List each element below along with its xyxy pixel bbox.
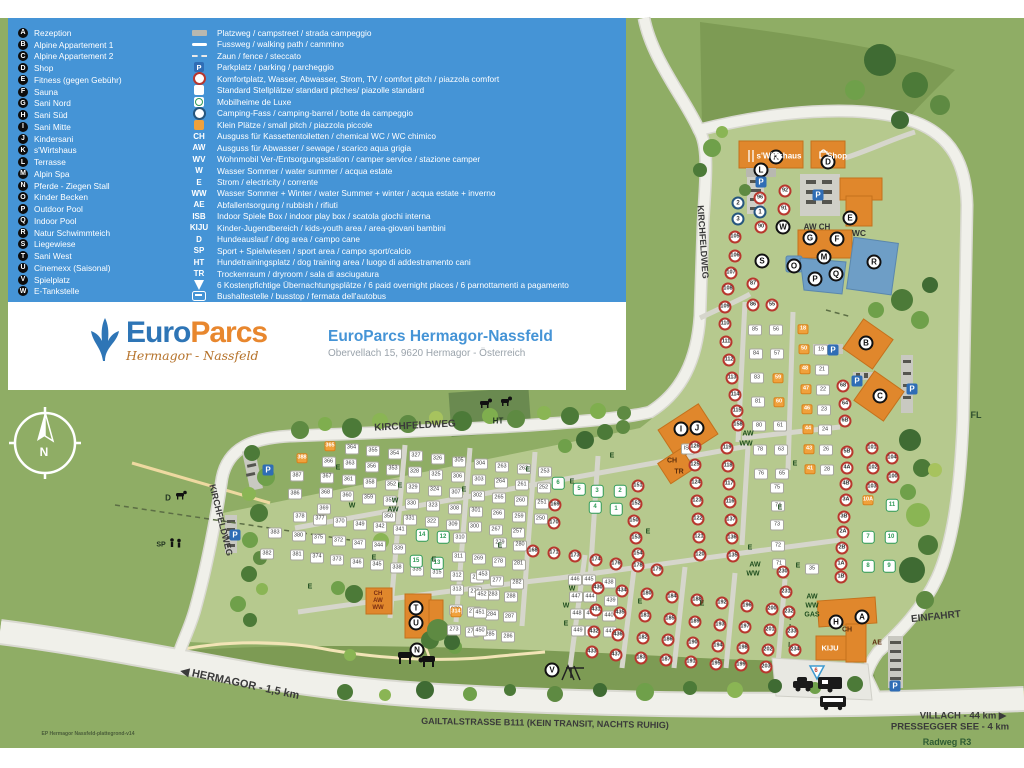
legend-letter-label: Alpin Spa [34, 169, 70, 179]
pitch-200: 200 [766, 603, 779, 616]
pitch-137: 137 [725, 514, 738, 527]
legend-symbol-label: Strom / electricity / corrente [217, 177, 318, 187]
map-label: W [349, 503, 356, 510]
pitch-430: 430 [592, 582, 605, 595]
legend-letter-label: Natur Schwimmteich [34, 228, 110, 238]
legend-letter-badge: W [18, 286, 28, 296]
pitch-368: 368 [319, 488, 333, 499]
legend-item-V: VSpielplatz [18, 274, 186, 286]
map-label: AW [806, 594, 817, 601]
legend-item-K: Ks'Wirtshaus [18, 145, 186, 157]
mobil-icon [186, 97, 212, 107]
map-label: SP [156, 542, 165, 549]
pitch-287: 287 [503, 612, 517, 623]
legend-item-R: RNatur Schwimmteich [18, 227, 186, 239]
pitch-5B: 5B [841, 446, 854, 459]
pitch-118: 118 [722, 460, 735, 473]
pitch-75: 75 [770, 483, 784, 494]
pitch-96: 96 [754, 192, 767, 205]
pitch-169: 169 [549, 499, 562, 512]
pitch-3: 3 [591, 485, 604, 498]
legend-code-SP: SP [186, 246, 212, 255]
legend-symbol-item: WVWohnmobil Ver-/Entsorgungsstation / ca… [186, 153, 569, 164]
map-label: ◀ HERMAGOR - 1,5 km [180, 664, 301, 702]
pitch-452: 452 [475, 590, 489, 601]
pitch-108: 108 [722, 283, 735, 296]
map-label: WW [372, 605, 383, 611]
pitch-4B: 4B [840, 478, 853, 491]
legend-letter-badge: P [18, 204, 28, 214]
pitch-313: 313 [450, 585, 464, 596]
pitch-168: 168 [527, 545, 540, 558]
legend-letter-label: Sauna [34, 87, 58, 97]
pitch-116: 116 [724, 496, 737, 509]
road-icon [186, 30, 212, 36]
legend-letter-badge: Q [18, 216, 28, 226]
legend-letter-badge: T [18, 251, 28, 261]
legend-symbols: Platzweg / campstreet / strada campeggio… [186, 27, 569, 302]
legend-item-F: FSauna [18, 86, 186, 98]
pitch-278: 278 [492, 557, 506, 568]
pitch-106: 106 [729, 250, 742, 263]
legend-symbol-item: Bushaltestelle / busstop / fermata dell'… [186, 291, 569, 302]
fence-icon [186, 55, 212, 57]
pitch-310: 310 [453, 532, 467, 543]
pitch-302: 302 [471, 490, 485, 501]
pitch-64: 64 [839, 398, 852, 411]
pitch-329: 329 [406, 483, 420, 494]
pitch-338: 338 [390, 563, 404, 574]
legend-letter-badge: F [18, 87, 28, 97]
legend-item-C: CAlpine Appartement 2 [18, 51, 186, 63]
pitch-326: 326 [431, 454, 445, 465]
map-label: E [564, 621, 569, 628]
map-label: EINFAHRT [911, 609, 962, 625]
pitch-233: 233 [786, 626, 799, 639]
pitch-114: 114 [729, 389, 742, 402]
legend-symbol-item: PParkplatz / parking / parcheggio [186, 61, 569, 72]
map-label: E [638, 599, 643, 606]
pitch-117: 117 [723, 478, 736, 491]
pitch-6: 6 [552, 477, 565, 490]
legend-letter-label: E-Tankstelle [34, 286, 79, 296]
map-label: GAS [804, 612, 819, 619]
legend-letter-label: Alpine Appartement 2 [34, 51, 113, 61]
facility-C: C [873, 389, 888, 404]
brand-euro: Euro [126, 316, 190, 349]
pitch-360: 360 [340, 491, 354, 502]
legend-letter-badge: A [18, 28, 28, 38]
pitch-322: 322 [425, 517, 439, 528]
pitch-341: 341 [393, 525, 407, 536]
pitch-375: 375 [312, 533, 326, 544]
pitch-119: 119 [721, 442, 734, 455]
pitch-314: 314 [451, 607, 462, 617]
pitch-195: 195 [710, 658, 723, 671]
pitch-10A: 10A [863, 495, 874, 505]
map-label: W [563, 603, 570, 610]
legend-symbol-item: WWasser Sommer / water summer / acqua es… [186, 165, 569, 176]
pitch-230: 230 [777, 566, 790, 579]
pitch-87: 87 [747, 278, 760, 291]
legend-symbol-item: Camping-Fass / camping-barrel / botte da… [186, 107, 569, 119]
pitch-123: 123 [691, 495, 704, 508]
legend-symbol-item: KIJUKinder-Jugendbereich / kids-youth ar… [186, 222, 569, 233]
map-label: E [748, 545, 753, 552]
map-label: E [610, 453, 615, 460]
legend-letter-badge: E [18, 75, 28, 85]
pitch-103: 103 [866, 481, 879, 494]
pitch-366: 366 [322, 456, 336, 467]
legend-item-I: ISani Mitte [18, 121, 186, 133]
pitch-105: 105 [729, 231, 742, 244]
pitch-342: 342 [373, 522, 387, 533]
pitch-373: 373 [330, 555, 344, 566]
legend-item-W: WE-Tankstelle [18, 286, 186, 298]
map-label: GAILTALSTRASSE B111 (KEIN TRANSIT, NACHT… [421, 716, 669, 730]
legend-symbol-label: Mobilheime de Luxe [217, 97, 291, 107]
legend-symbol-label: Wohnmobil Ver-/Entsorgungsstation / camp… [217, 154, 480, 164]
facility-J: J [690, 421, 705, 436]
map-label: E [498, 543, 503, 550]
legend-symbol-item: Standard Stellplätze/ standard pitches/ … [186, 85, 569, 96]
parking-sign: P [890, 681, 901, 692]
parking-sign: P [907, 384, 918, 395]
map-label: CH [667, 458, 677, 465]
legend-symbol-label: Komfortplatz, Wasser, Abwasser, Strom, T… [217, 74, 499, 84]
pitch-73: 73 [770, 520, 784, 531]
pitch-78: 78 [753, 445, 767, 456]
pitch-63: 63 [774, 445, 788, 456]
pitch-433: 433 [586, 646, 599, 659]
map-label: E [308, 584, 313, 591]
legend-item-G: GSani Nord [18, 98, 186, 110]
legend-symbol-label: Hundetrainingsplatz / dog training area … [217, 257, 471, 267]
pitch-135: 135 [727, 550, 740, 563]
facility-F: F [830, 232, 845, 247]
legend-code-WW: WW [186, 189, 212, 198]
bus-icon [186, 291, 212, 301]
map-label: D [165, 494, 171, 503]
map-label: 6 [814, 668, 817, 674]
legend-letter-label: Sani Mitte [34, 122, 71, 132]
parking-icon: P [186, 62, 212, 72]
pitch-3A: 3A [840, 494, 853, 507]
pitch-374: 374 [310, 552, 324, 563]
pitch-383: 383 [268, 528, 282, 539]
pitch-353: 353 [386, 464, 400, 475]
pitch-178: 178 [632, 560, 645, 573]
map-label: VILLACH - 44 km ▶ [920, 711, 1007, 722]
pitch-354: 354 [388, 448, 402, 459]
pitch-107: 107 [725, 267, 738, 280]
legend-letter-label: Fitness (gegen Gebühr) [34, 75, 122, 85]
pitch-432: 432 [588, 626, 601, 639]
facility-W: W [776, 220, 791, 235]
legend-symbol-label: Hundeauslauf / dog area / campo cane [217, 234, 360, 244]
pitch-9: 9 [883, 560, 896, 573]
pitch-124: 124 [690, 477, 703, 490]
pitch-15: 15 [410, 555, 423, 568]
pitch-83: 83 [750, 373, 764, 384]
path-icon [186, 43, 212, 46]
pitch-370: 370 [333, 517, 347, 528]
pitch-380: 380 [292, 531, 306, 542]
pitch-339: 339 [392, 544, 406, 555]
barrel-icon [186, 107, 212, 120]
pitch-377: 377 [313, 514, 327, 525]
pitch-59: 59 [773, 373, 784, 383]
pitch-234: 234 [789, 644, 802, 657]
pitch-203: 203 [760, 661, 773, 674]
pitch-153: 153 [630, 532, 643, 545]
legend-symbol-item: SPSport + Spielwiesen / sport area / cam… [186, 245, 569, 256]
pitch-22: 22 [816, 385, 830, 396]
pitch-191: 191 [685, 656, 698, 669]
pitch-311: 311 [452, 551, 466, 562]
pitch-101: 101 [866, 442, 879, 455]
map-label: PRESSEGGER SEE - 4 km [891, 722, 1009, 733]
legend-symbol-item: Komfortplatz, Wasser, Abwasser, Strom, T… [186, 73, 569, 85]
pitch-192: 192 [716, 597, 729, 610]
legend-letters: ARezeptionBAlpine Appartement 1CAlpine A… [18, 27, 186, 302]
pitch-448: 448 [570, 609, 584, 620]
map-label: WW [739, 441, 752, 448]
pitch-150: 150 [628, 515, 641, 528]
legend-letter-badge: M [18, 169, 28, 179]
legend-symbol-label: Klein Plätze / small pitch / piazzola pi… [217, 120, 372, 130]
pitch-437: 437 [610, 649, 623, 662]
pitch-12: 12 [437, 531, 450, 544]
pitch-110: 110 [719, 318, 732, 331]
pitch-84: 84 [749, 349, 763, 360]
pitch-171: 171 [548, 547, 561, 560]
legend-symbol-label: Abfallentsorgung / rubbish / rifiuti [217, 200, 338, 210]
legend-item-A: ARezeption [18, 27, 186, 39]
pitch-265: 265 [492, 493, 506, 504]
pitch-282: 282 [510, 578, 524, 589]
pitch-6B: 6B [839, 415, 852, 428]
legend-item-T: TSani West [18, 250, 186, 262]
legend-code-CH: CH [186, 132, 212, 141]
facility-N: N [410, 643, 425, 658]
legend-letter-label: Kinder Becken [34, 192, 88, 202]
pitch-19: 19 [814, 345, 828, 356]
pitch-47: 47 [801, 384, 812, 394]
pitch-85: 85 [748, 325, 762, 336]
legend-item-U: UCinemexx (Saisonal) [18, 262, 186, 274]
legend-symbol-item: AEAbfallentsorgung / rubbish / rifiuti [186, 199, 569, 210]
legend-symbol-label: Platzweg / campstreet / strada campeggio [217, 28, 372, 38]
pitch-100: 100 [887, 471, 900, 484]
pitch-10: 10 [885, 531, 898, 544]
facility-E: E [843, 211, 858, 226]
legend-letter-badge: K [18, 145, 28, 155]
map-label: FL [971, 410, 982, 420]
pitch-197: 197 [739, 621, 752, 634]
pitch-125: 125 [689, 459, 702, 472]
pitch-198: 198 [737, 642, 750, 655]
pitch-346: 346 [350, 557, 364, 568]
pitch-120: 120 [694, 549, 707, 562]
map-label: AW [742, 431, 753, 438]
pitch-382: 382 [260, 549, 274, 560]
pitch-257: 257 [511, 527, 525, 538]
pitch-281: 281 [512, 559, 526, 570]
legend-item-J: JKindersani [18, 133, 186, 145]
legend-item-E: EFitness (gegen Gebühr) [18, 74, 186, 86]
pitch-184: 184 [666, 591, 679, 604]
pitch-8: 8 [862, 560, 875, 573]
map-label: E [646, 529, 651, 536]
map-label: W [569, 586, 576, 593]
pitch-446: 446 [568, 575, 582, 586]
pitch-266: 266 [491, 509, 505, 520]
legend-symbol-label: Wasser Sommer / water summer / acqua est… [217, 166, 392, 176]
pitch-4A: 4A [841, 462, 854, 475]
facility-S: S [755, 254, 770, 269]
map-label: E [700, 601, 705, 608]
facility-P: P [808, 272, 823, 287]
pitch-109: 109 [719, 301, 732, 314]
facility-O: O [787, 259, 802, 274]
facility-U: U [409, 616, 424, 631]
site-address: Obervellach 15, 9620 Hermagor - Österrei… [328, 348, 553, 359]
legend-letter-label: Cinemexx (Saisonal) [34, 263, 111, 273]
map-label: KIJU [821, 644, 838, 653]
pitch-102: 102 [867, 462, 880, 475]
pitch-23: 23 [817, 405, 831, 416]
logo-strip: EuroParcs Hermagor - Nassfeld EuroParcs … [8, 302, 626, 390]
legend-code-WV: WV [186, 155, 212, 164]
legend-letter-label: Spielplatz [34, 275, 70, 285]
legend-letter-label: Pferde - Ziegen Stall [34, 181, 110, 191]
legend-symbol-item: Fussweg / walking path / cammino [186, 38, 569, 49]
legend-symbol-item: ISBIndoor Spiele Box / indoor play box /… [186, 211, 569, 222]
legend-item-S: SLiegewiese [18, 239, 186, 251]
legend-item-N: NPferde - Ziegen Stall [18, 180, 186, 192]
pitch-26: 26 [819, 445, 833, 456]
pitch-277: 277 [490, 576, 504, 587]
legend-code-AE: AE [186, 200, 212, 209]
pitch-356: 356 [365, 462, 379, 473]
legend-symbol-item: Platzweg / campstreet / strada campeggio [186, 27, 569, 38]
legend-letter-label: Kindersani [34, 134, 73, 144]
pitch-386: 386 [288, 489, 302, 500]
pitch-46: 46 [802, 404, 813, 414]
legend-symbol-label: Zaun / fence / steccato [217, 51, 301, 61]
pitch-273: 273 [447, 625, 461, 636]
facility-L: L [754, 163, 769, 178]
legend-symbol-label: 6 Kostenpfichtige Übernachtungsplätze / … [217, 280, 569, 290]
map-label: AW [373, 598, 383, 604]
parking-sign: P [230, 530, 241, 541]
legend-letter-badge: N [18, 181, 28, 191]
pitch-387: 387 [290, 471, 304, 482]
pitch-288: 288 [504, 592, 518, 603]
legend-item-P: POutdoor Pool [18, 203, 186, 215]
legend-letter-label: Sani West [34, 251, 72, 261]
map-label: CH [374, 591, 383, 597]
legend-letter-label: s'Wirtshaus [34, 145, 77, 155]
small-icon [186, 120, 212, 130]
pitch-55: 55 [766, 299, 779, 312]
legend-letter-label: Sani Nord [34, 98, 71, 108]
pitch-121: 121 [693, 531, 706, 544]
pitch-91: 91 [778, 203, 791, 216]
pitch-260: 260 [514, 496, 528, 507]
map-label: HT [493, 417, 504, 426]
legend-symbol-item: TRTrockenraum / dryroom / sala di asciug… [186, 268, 569, 279]
map-label: E [793, 461, 798, 468]
legend-symbol-item: DHundeauslauf / dog area / campo cane [186, 234, 569, 245]
legend-letter-label: Indoor Pool [34, 216, 76, 226]
pitch-181: 181 [639, 610, 652, 623]
pitch-347: 347 [352, 538, 366, 549]
legend-symbol-label: Camping-Fass / camping-barrel / botte da… [217, 108, 413, 118]
legend-symbol-item: EStrom / electricity / corrente [186, 176, 569, 187]
map-label: E [398, 483, 403, 490]
map-label: Radweg R3 [923, 737, 972, 747]
facility-T: T [409, 601, 424, 616]
map-label: E [570, 479, 575, 486]
brand-subtitle: Hermagor - Nassfeld [126, 348, 267, 363]
pitch-312: 312 [450, 570, 464, 581]
pitch-57: 57 [770, 349, 784, 360]
map-label: CH [842, 627, 852, 634]
legend-symbol-label: Parkplatz / parking / parcheggio [217, 62, 334, 72]
pitch-136: 136 [726, 532, 739, 545]
pitch-358: 358 [363, 477, 377, 488]
facility-M: M [817, 250, 832, 265]
map-label: KIRCHFELDWEG [207, 483, 234, 557]
pitch-92: 92 [779, 185, 792, 198]
pitch-28: 28 [820, 465, 834, 476]
pitch-367: 367 [320, 472, 334, 483]
pitch-3: 3 [732, 213, 745, 226]
map-label: Shop [827, 152, 847, 161]
legend-symbol-item: WWWasser Sommer + Winter / water Summer … [186, 188, 569, 199]
parking-sign: P [852, 376, 863, 387]
facility-G: G [803, 231, 818, 246]
pitch-231: 231 [780, 586, 793, 599]
pitch-76: 76 [754, 469, 768, 480]
pitch-80: 80 [752, 421, 766, 432]
map-label: E [462, 487, 467, 494]
pitch-21: 21 [815, 365, 829, 376]
pitch-365: 365 [325, 441, 336, 451]
pitch-173: 173 [569, 550, 582, 563]
legend-item-M: MAlpin Spa [18, 168, 186, 180]
pitch-369: 369 [317, 504, 331, 515]
map-label: N [40, 445, 49, 459]
legend-symbol-item: 6 Kostenpfichtige Übernachtungsplätze / … [186, 279, 569, 290]
pitch-111: 111 [720, 336, 733, 349]
legend-letter-badge: D [18, 63, 28, 73]
pitch-201: 201 [764, 624, 777, 637]
pitch-56: 56 [769, 325, 783, 336]
legend-symbol-item: Klein Plätze / small pitch / piazzola pi… [186, 119, 569, 130]
pitch-250: 250 [534, 514, 548, 525]
pitch-179: 179 [651, 564, 664, 577]
parking-sign: P [828, 345, 839, 356]
map-label: E [336, 465, 341, 472]
pitch-300: 300 [468, 522, 482, 533]
pitch-315: 315 [430, 568, 444, 579]
pitch-190: 190 [687, 637, 700, 650]
legend-letter-badge: H [18, 110, 28, 120]
pitch-170: 170 [548, 517, 561, 530]
